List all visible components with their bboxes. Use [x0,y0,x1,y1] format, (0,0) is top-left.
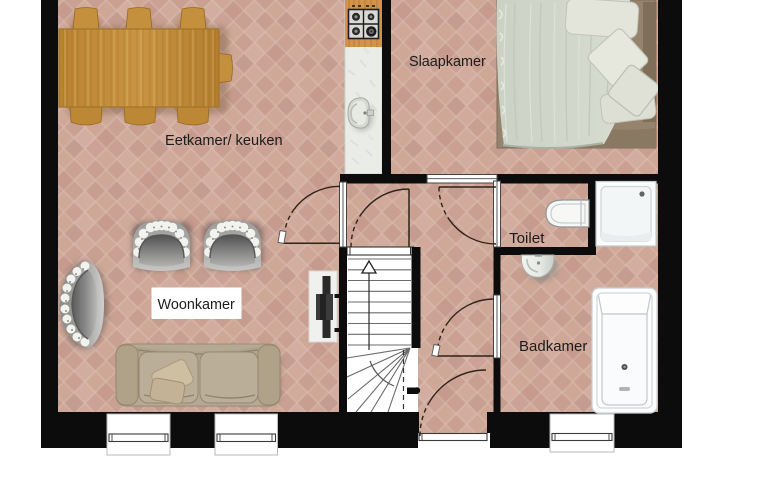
svg-text:Toilet: Toilet [509,230,545,247]
svg-text:Woonkamer: Woonkamer [158,297,236,313]
svg-text:Eetkamer/ keuken: Eetkamer/ keuken [165,133,283,149]
svg-text:Slaapkamer: Slaapkamer [409,54,486,70]
svg-text:Badkamer: Badkamer [519,338,587,355]
